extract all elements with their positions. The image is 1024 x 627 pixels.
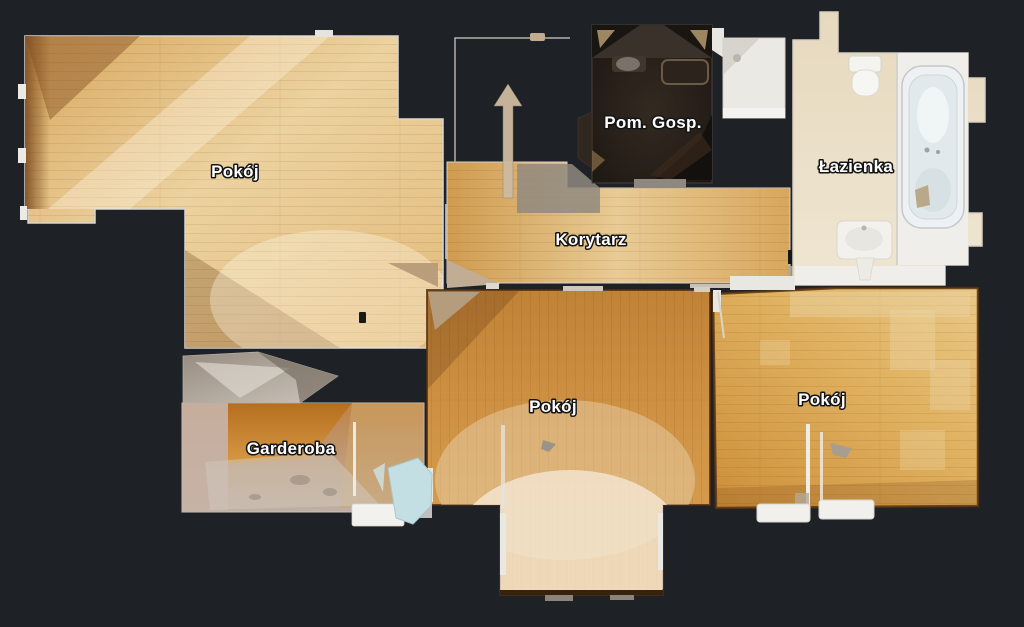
room-label-pokoj-center: Pokój	[529, 397, 577, 416]
window-frame	[501, 425, 505, 508]
floorplan-canvas[interactable]: Pokój Pom. Gosp. Łazienka Korytarz Pokój…	[0, 0, 1024, 627]
wall-segment	[730, 276, 795, 290]
wall-fragment	[530, 33, 545, 41]
sink-basin	[845, 227, 883, 251]
light-patch	[890, 310, 935, 370]
room-label-korytarz: Korytarz	[555, 230, 626, 249]
faucet	[936, 150, 940, 154]
radiator	[757, 504, 810, 522]
wall-segment	[896, 53, 898, 265]
threshold-tab	[545, 595, 573, 601]
light-patch	[790, 292, 970, 317]
room-label-garderoba: Garderoba	[247, 439, 336, 458]
toilet-bowl	[852, 70, 879, 96]
door-leaf	[578, 112, 592, 168]
room-shower	[712, 28, 785, 118]
window-frame	[658, 513, 663, 570]
door-sill	[694, 287, 710, 292]
stain	[249, 494, 261, 500]
appliance	[662, 60, 708, 84]
shower-tray-edge	[723, 108, 785, 118]
wall-segment	[445, 204, 447, 259]
light-patch	[930, 360, 970, 410]
room-label-pom-gosp: Pom. Gosp.	[604, 113, 701, 132]
bathtub-highlight	[917, 87, 949, 143]
shower-drain	[733, 54, 741, 62]
room-label-lazienka: Łazienka	[819, 157, 893, 176]
room-pom-gosp	[578, 25, 712, 188]
appliance-drum	[616, 57, 640, 71]
stain	[290, 475, 310, 485]
light-patch	[760, 340, 790, 365]
room-lazienka	[793, 12, 985, 285]
light-patch	[900, 430, 945, 470]
stain	[323, 488, 337, 496]
window-sill	[20, 206, 27, 220]
door-sill	[563, 286, 603, 291]
door-frame	[353, 422, 356, 496]
window-frame	[500, 513, 506, 575]
floor-object	[359, 312, 366, 323]
radiator	[819, 500, 874, 519]
room-label-pokoj-east: Pokój	[798, 390, 846, 409]
threshold	[634, 179, 686, 188]
window-frame	[820, 432, 823, 506]
room-label-pokoj-nw: Pokój	[211, 162, 259, 181]
window-sill	[18, 84, 26, 99]
threshold-tab	[610, 595, 634, 600]
floorplan-svg[interactable]: Pokój Pom. Gosp. Łazienka Korytarz Pokój…	[0, 0, 1024, 627]
faucet	[925, 148, 930, 153]
wall-segment	[315, 30, 333, 37]
door-sill	[486, 283, 499, 289]
window-sill	[18, 148, 26, 163]
sink-faucet	[862, 226, 867, 231]
